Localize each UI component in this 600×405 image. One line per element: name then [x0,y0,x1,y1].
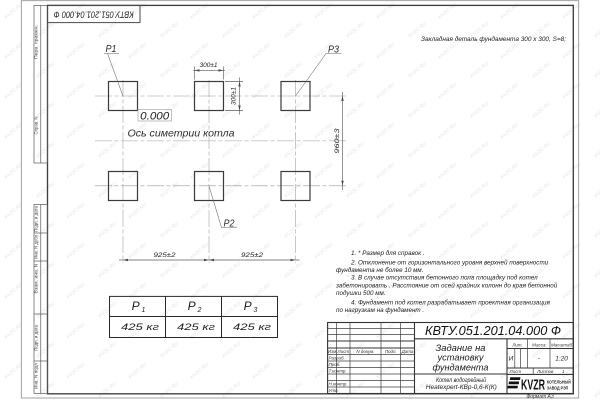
svg-text:N докум.: N докум. [356,349,374,354]
svg-text:Н.контр.: Н.контр. [329,382,348,387]
svg-text:Проб.: Проб. [329,362,341,367]
svg-text:Р1: Р1 [106,43,117,55]
svg-text:1:20: 1:20 [555,356,568,363]
svg-text:Изм: Изм [328,349,336,354]
svg-text:Подп. и дата: Подп. и дата [34,205,39,232]
svg-text:300±1: 300±1 [200,62,218,69]
svg-text:4. Фундамент под котел разраба: 4. Фундамент под котел разрабатывает про… [351,299,550,307]
svg-text:забетонировать . Расстояние от: забетонировать . Расстояние от осей край… [335,281,558,289]
svg-text:ЗАВОД РЭП: ЗАВОД РЭП [547,385,569,390]
svg-text:925±2: 925±2 [154,252,177,259]
svg-text:КОТЕЛЬНЫЙ: КОТЕЛЬНЫЙ [547,378,571,385]
svg-text:3. В случае отсутствия бетонно: 3. В случае отсутствия бетонного пола пл… [351,274,538,282]
svg-text:0.000: 0.000 [140,111,170,123]
svg-text:Подп.: Подп. [385,349,397,354]
svg-text:Перв. примен.: Перв. примен. [34,25,39,59]
svg-text:2. Отклонение от горизонтально: 2. Отклонение от горизонтального уровня … [350,259,549,267]
svg-text:Лит.: Лит. [511,343,523,348]
svg-text:Справ. N: Справ. N [34,117,39,135]
svg-text:KVZR: KVZR [521,377,545,394]
svg-text:Разраб.: Разраб. [329,356,345,361]
svg-text:КВТУ.051.201.04.000 Ф: КВТУ.051.201.04.000 Ф [425,324,561,338]
svg-text:КВТУ.051.201.04.000 Ф: КВТУ.051.201.04.000 Ф [53,9,133,20]
svg-text:300±1: 300±1 [231,87,238,105]
svg-text:Лист: Лист [337,349,350,354]
svg-text:фундамента не более 10 мм.: фундамента не более 10 мм. [336,266,424,274]
svg-text:Инв. N дубл: Инв. N дубл [34,235,39,259]
svg-text:Листов: Листов [536,369,554,374]
svg-text:Масса: Масса [532,343,546,348]
svg-text:Т.контр.: Т.контр. [329,369,347,374]
svg-text:Масштаб: Масштаб [551,343,572,348]
svg-text:960±3: 960±3 [334,128,341,154]
svg-text:Дата: Дата [401,349,414,354]
svg-text:425 кг: 425 кг [233,322,271,333]
svg-text:Формат А3: Формат А3 [526,394,554,400]
svg-text:925±2: 925±2 [241,252,264,259]
svg-text:Взам. инв. N: Взам. инв. N [34,264,39,294]
svg-text:Лист: Лист [509,369,522,374]
svg-text:425 кг: 425 кг [177,322,215,333]
svg-text:И: И [509,356,514,363]
svg-text:1. * Размер для справок .: 1. * Размер для справок . [351,249,425,257]
svg-text:Котел водогрейный: Котел водогрейный [436,377,487,384]
svg-text:Закладная деталь фундамента 3: Закладная деталь фундамента 300 х 300, S… [421,37,566,43]
svg-text:Heatexpert-КВр-0,6-К(К): Heatexpert-КВр-0,6-К(К) [426,385,497,391]
svg-text:фундамента: фундамента [433,363,489,374]
svg-text:Подп. и дата: Подп. и дата [34,324,39,351]
svg-text:Ось симетрии котла: Ось симетрии котла [128,129,235,140]
svg-text:425 кг: 425 кг [121,322,159,333]
svg-text:Р2: Р2 [224,218,235,230]
svg-text:подушки 500 мм.: подушки 500 мм. [336,289,386,297]
svg-text:по нагрузкам на фундамент .: по нагрузкам на фундамент . [336,306,424,314]
svg-text:Инв. N подл: Инв. N подл [34,363,39,389]
svg-text:Р3: Р3 [328,44,339,56]
svg-text:Утв.: Утв. [329,388,339,393]
